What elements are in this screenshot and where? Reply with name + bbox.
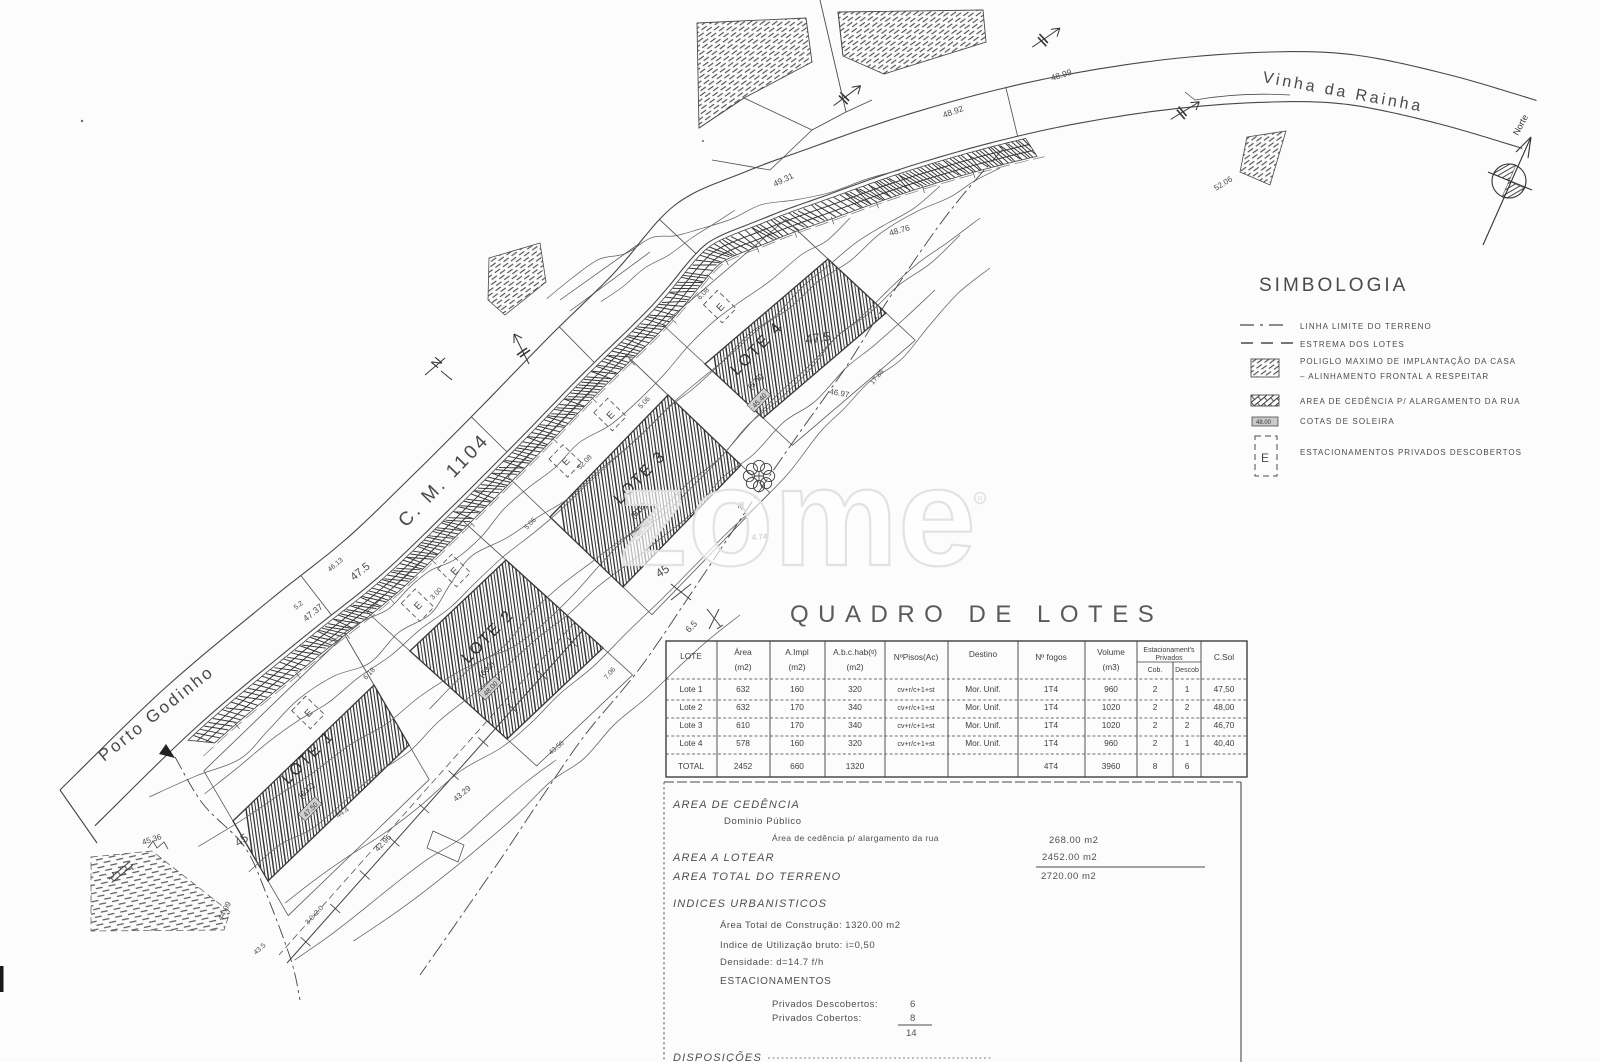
svg-text:8: 8 (1153, 761, 1158, 771)
svg-text:cv+r/c+1+st: cv+r/c+1+st (897, 685, 934, 694)
svg-text:268.00 m2: 268.00 m2 (1049, 835, 1098, 846)
svg-text:47,50: 47,50 (1214, 684, 1235, 694)
svg-text:2720.00 m2: 2720.00 m2 (1041, 871, 1096, 882)
svg-text:6: 6 (1185, 761, 1190, 771)
svg-text:Lote 3: Lote 3 (679, 720, 702, 730)
svg-text:TOTAL: TOTAL (678, 761, 704, 771)
svg-text:Privados Cobertos:: Privados Cobertos: (772, 1013, 862, 1024)
svg-text:(m2): (m2) (788, 662, 805, 672)
svg-text:2: 2 (1185, 702, 1190, 712)
svg-text:340: 340 (848, 720, 862, 730)
svg-text:Dominio Público: Dominio Público (724, 816, 802, 827)
svg-text:1T4: 1T4 (1044, 702, 1059, 712)
svg-text:AREA A LOTEAR: AREA A LOTEAR (672, 852, 775, 864)
svg-text:610: 610 (736, 720, 750, 730)
svg-text:A.b.c.hab(ᵍ): A.b.c.hab(ᵍ) (833, 647, 877, 657)
svg-text:320: 320 (848, 684, 862, 694)
svg-text:632: 632 (736, 702, 750, 712)
svg-text:Destino: Destino (969, 649, 998, 659)
svg-text:48.00: 48.00 (1256, 420, 1272, 426)
svg-text:AREA TOTAL DO TERRENO: AREA TOTAL DO TERRENO (672, 871, 841, 883)
svg-text:cv+r/c+1+st: cv+r/c+1+st (897, 721, 934, 730)
svg-text:578: 578 (736, 738, 750, 748)
svg-text:AREA DE CEDÊNCIA P/ ALARGA: AREA DE CEDÊNCIA P/ ALARGAMENTO DA RUA (1300, 397, 1521, 406)
svg-text:Mor. Unif.: Mor. Unif. (965, 738, 1001, 748)
svg-text:1320: 1320 (846, 761, 865, 771)
svg-text:DISPOSIÇÕES: DISPOSIÇÕES (673, 1051, 762, 1062)
svg-text:Privados: Privados (1155, 655, 1183, 662)
svg-text:1T4: 1T4 (1044, 684, 1059, 694)
svg-text:340: 340 (848, 702, 862, 712)
svg-text:4T4: 4T4 (1044, 761, 1059, 771)
svg-text:ESTREMA DOS LOTES: ESTREMA DOS LOTES (1300, 340, 1405, 349)
svg-text:– ALINHAMENTO FRONTAL A RE: – ALINHAMENTO FRONTAL A RESPEITAR (1300, 372, 1489, 381)
svg-text:1T4: 1T4 (1044, 738, 1059, 748)
svg-text:(m2): (m2) (734, 662, 751, 672)
svg-text:6: 6 (910, 999, 915, 1010)
svg-text:SIMBOLOGIA: SIMBOLOGIA (1259, 275, 1408, 296)
svg-text:LOTE: LOTE (680, 651, 702, 661)
svg-text:632: 632 (736, 684, 750, 694)
svg-text:(m2): (m2) (846, 662, 863, 672)
svg-text:Mor. Unif.: Mor. Unif. (965, 720, 1001, 730)
svg-text:3960: 3960 (1102, 761, 1121, 771)
svg-text:170: 170 (790, 702, 804, 712)
svg-text:E: E (1261, 451, 1269, 465)
svg-text:170: 170 (790, 720, 804, 730)
svg-text:46,70: 46,70 (1214, 720, 1235, 730)
svg-text:Estacionament's: Estacionament's (1143, 647, 1195, 654)
svg-text:320: 320 (848, 738, 862, 748)
svg-text:COTAS DE SOLEIRA: COTAS DE SOLEIRA (1300, 417, 1395, 426)
svg-text:14: 14 (906, 1028, 917, 1039)
svg-text:cv+r/c+1+st: cv+r/c+1+st (897, 703, 934, 712)
svg-text:QUADRO DE LOTES: QUADRO DE LOTES (790, 601, 1163, 628)
svg-text:2: 2 (1153, 684, 1158, 694)
svg-text:1: 1 (1185, 738, 1190, 748)
svg-text:1020: 1020 (1102, 702, 1121, 712)
svg-text:Área de cedência p/ alarga: Área de cedência p/ alargamento da rua (772, 833, 939, 843)
svg-text:1T4: 1T4 (1044, 720, 1059, 730)
svg-text:8: 8 (910, 1013, 915, 1024)
svg-text:2452.00 m2: 2452.00 m2 (1042, 852, 1097, 863)
svg-text:LINHA LIMITE DO TERRENO: LINHA LIMITE DO TERRENO (1300, 322, 1432, 331)
svg-text:cv+r/c+1+st: cv+r/c+1+st (897, 739, 934, 748)
svg-text:ESTACIONAMENTOS: ESTACIONAMENTOS (720, 976, 832, 987)
svg-text:NºPisos(Ac): NºPisos(Ac) (894, 652, 939, 662)
svg-text:Mor. Unif.: Mor. Unif. (965, 684, 1001, 694)
svg-text:A.Impl: A.Impl (785, 647, 809, 657)
svg-text:2: 2 (1185, 720, 1190, 730)
svg-text:Lote 4: Lote 4 (679, 738, 702, 748)
svg-text:Descob: Descob (1175, 667, 1199, 674)
svg-text:ESTACIONAMENTOS PRIVADOS DES: ESTACIONAMENTOS PRIVADOS DESCOBERTOS (1300, 448, 1522, 457)
svg-text:INDICES URBANISTICOS: INDICES URBANISTICOS (673, 898, 827, 910)
svg-text:160: 160 (790, 738, 804, 748)
svg-text:Lote 2: Lote 2 (679, 702, 702, 712)
svg-text:POLIGLO MAXIMO DE IMPLANTAÇ: POLIGLO MAXIMO DE IMPLANTAÇÃO DA CASA (1300, 357, 1516, 366)
svg-text:(m3): (m3) (1102, 662, 1119, 672)
svg-text:R: R (977, 496, 982, 503)
svg-text:Volume: Volume (1097, 647, 1125, 657)
svg-text:960: 960 (1104, 684, 1118, 694)
svg-text:40,40: 40,40 (1214, 738, 1235, 748)
svg-text:Área Total de Construção:: Área Total de Construção: 1320.00 m2 (720, 920, 900, 931)
svg-text:Densidade: d=14.7 f/h: Densidade: d=14.7 f/h (720, 957, 824, 968)
svg-text:2: 2 (1153, 738, 1158, 748)
svg-text:Nº fogos: Nº fogos (1035, 652, 1067, 662)
svg-text:2: 2 (1153, 720, 1158, 730)
svg-text:960: 960 (1104, 738, 1118, 748)
svg-text:2452: 2452 (734, 761, 753, 771)
svg-text:48,00: 48,00 (1214, 702, 1235, 712)
svg-text:C.Sol: C.Sol (1214, 652, 1234, 662)
svg-text:Cob.: Cob. (1148, 667, 1163, 674)
svg-text:Privados Descobertos:: Privados Descobertos: (772, 999, 878, 1010)
svg-text:AREA DE CEDÊNCIA: AREA DE CEDÊNCIA (672, 798, 800, 811)
svg-text:160: 160 (790, 684, 804, 694)
svg-text:1020: 1020 (1102, 720, 1121, 730)
svg-text:2: 2 (1153, 702, 1158, 712)
svg-text:Área: Área (734, 647, 752, 657)
svg-text:Lote 1: Lote 1 (679, 684, 702, 694)
svg-text:Mor. Unif.: Mor. Unif. (965, 702, 1001, 712)
svg-text:1: 1 (1185, 684, 1190, 694)
svg-text:zome: zome (618, 438, 976, 595)
svg-text:Indice de Utilização bruto:: Indice de Utilização bruto: i=0,50 (720, 940, 875, 951)
svg-text:660: 660 (790, 761, 804, 771)
